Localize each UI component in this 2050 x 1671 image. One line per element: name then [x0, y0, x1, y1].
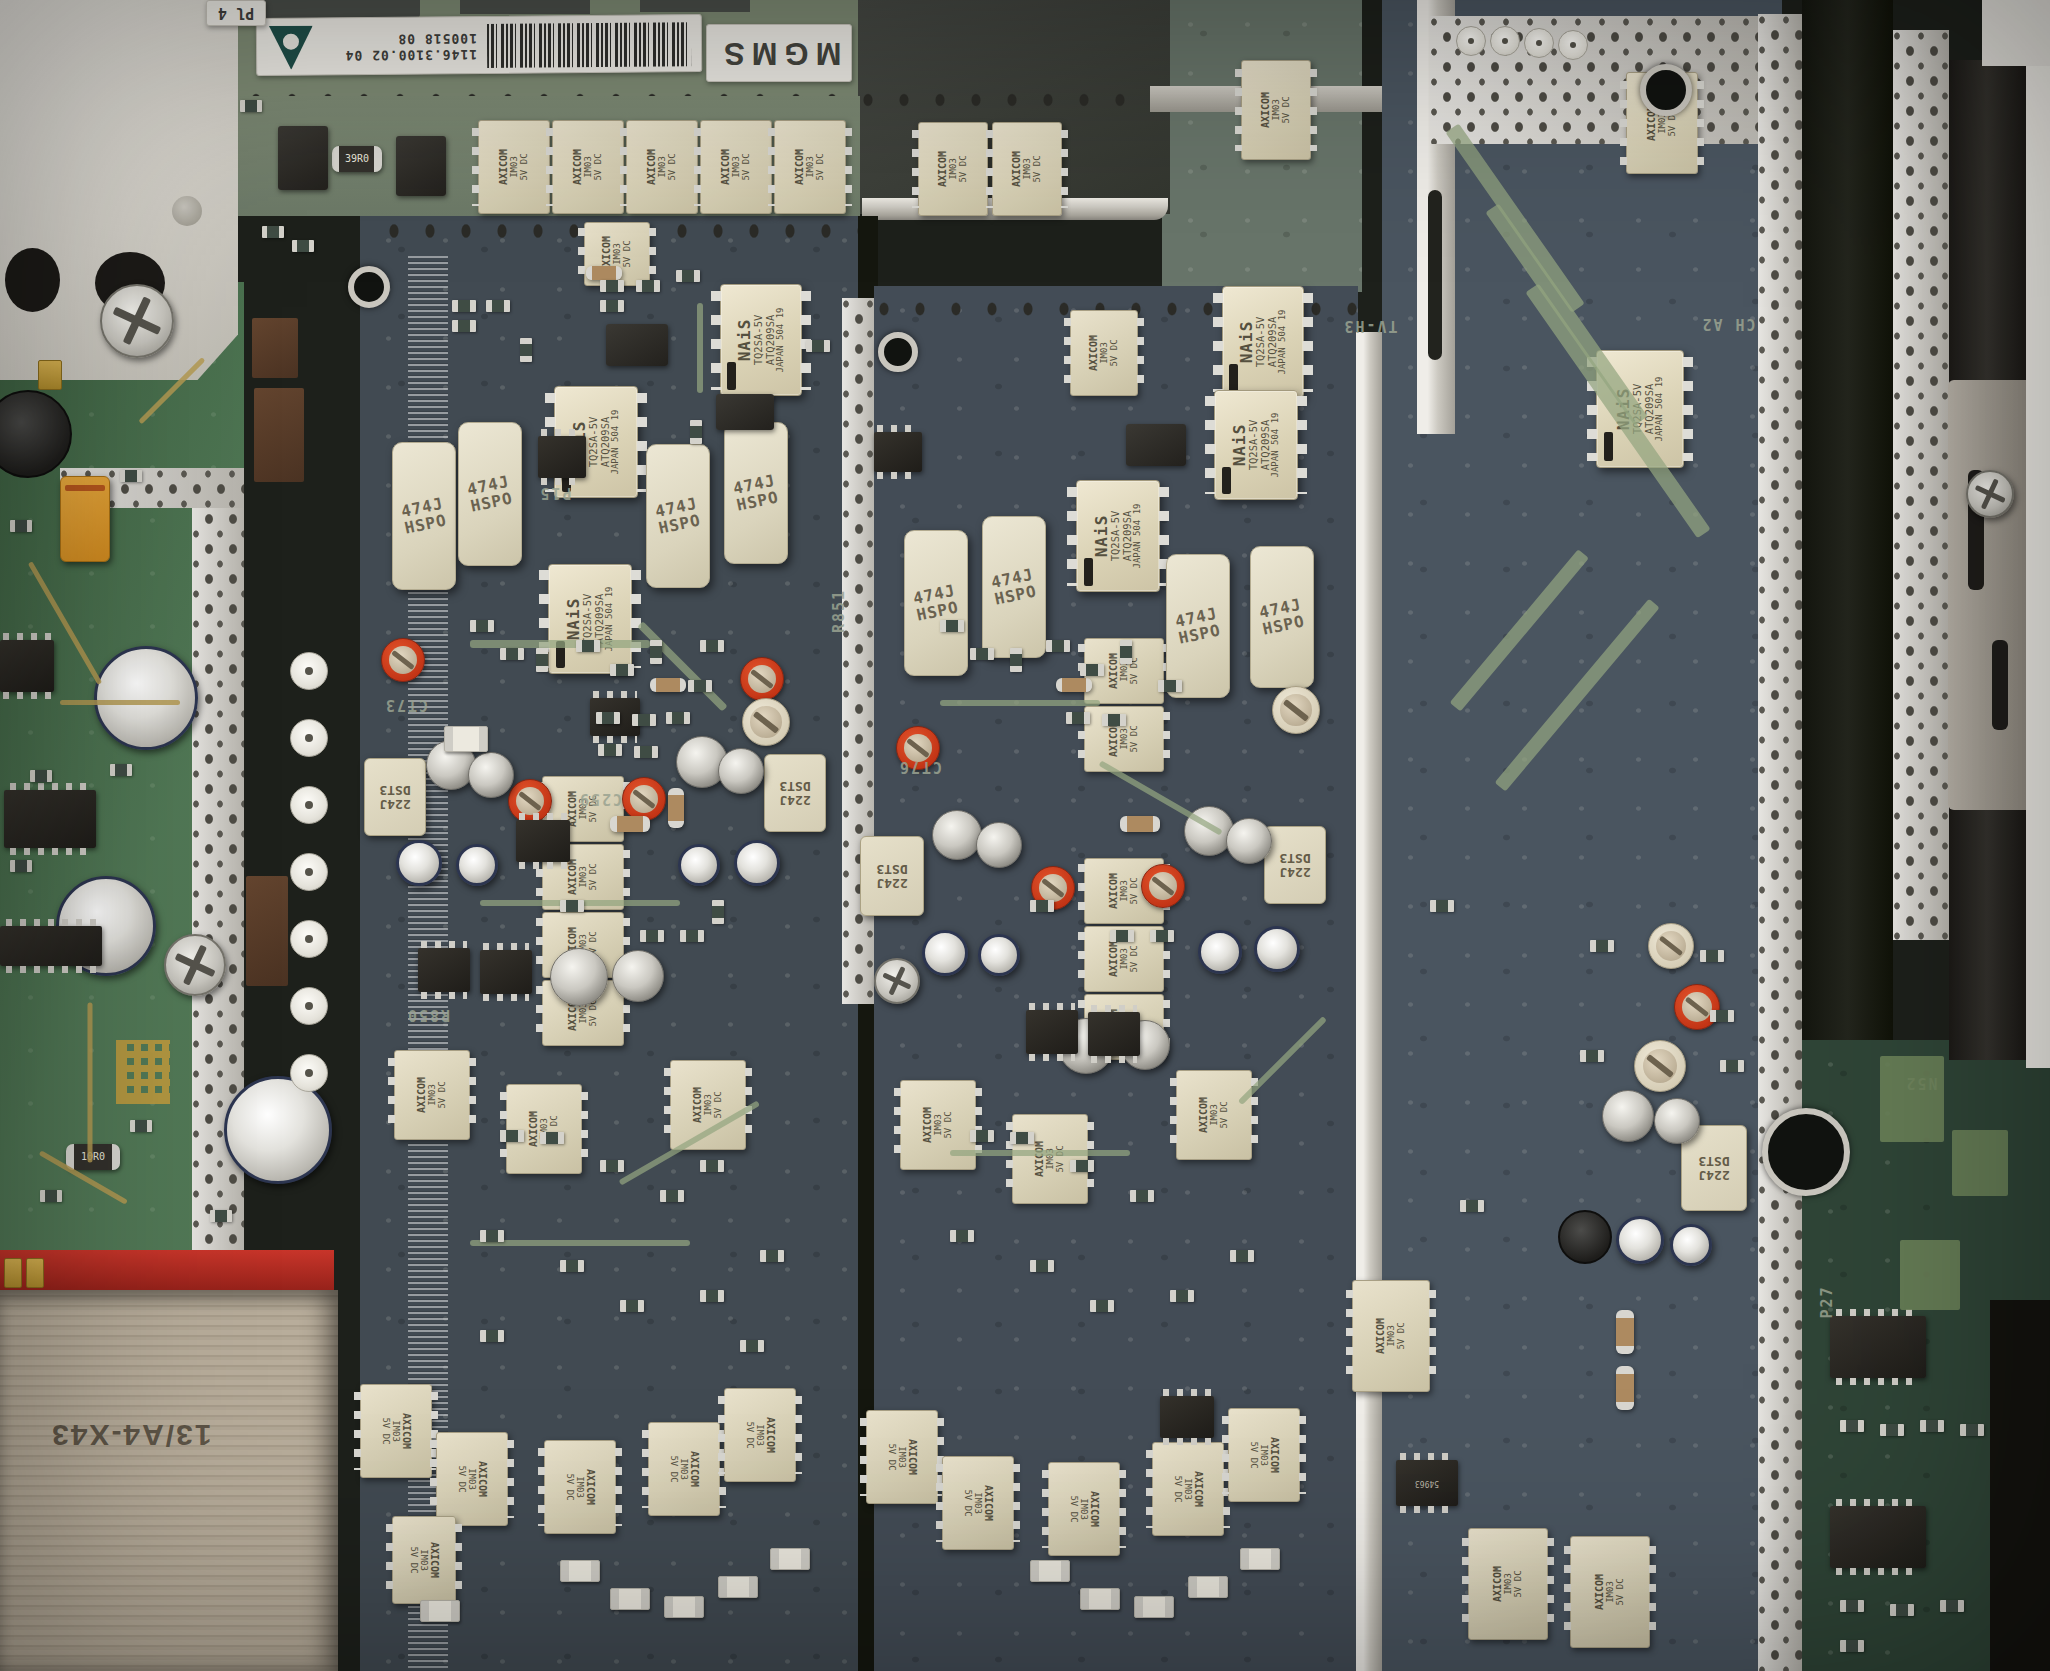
test-pad — [1490, 26, 1520, 56]
chip-component — [1840, 1420, 1864, 1432]
pcb-trace — [138, 357, 205, 424]
chip-component — [520, 338, 532, 362]
electrolytic-capacitor — [678, 844, 720, 886]
pcb-trace — [1450, 549, 1589, 711]
trimmer-dome-capacitor — [976, 822, 1022, 868]
chip-component — [760, 1250, 784, 1262]
chip-component — [120, 470, 142, 482]
chip-component — [600, 280, 624, 292]
components-layer: AXICOMIM035V DCAXICOMIM035V DCAXICOMIM03… — [0, 0, 2050, 1671]
chip-component — [500, 648, 524, 660]
chip-component — [1720, 1060, 1744, 1072]
chip-component — [1090, 1300, 1114, 1312]
smd-ic-soic8 — [1088, 1012, 1140, 1056]
chip-capacitor-white — [1240, 1548, 1280, 1570]
chip-component — [480, 1230, 504, 1242]
silkscreen-label: C259 — [560, 788, 640, 810]
relay-nais: NAiSTQ2SA-5VATQ209SAJAPAN 504 19 — [1214, 390, 1298, 500]
chip-component — [700, 640, 724, 652]
chip-component — [640, 930, 664, 942]
film-capacitor-224j: 224JDST3 — [764, 754, 826, 832]
chip-component — [690, 420, 702, 444]
chip-component — [10, 860, 32, 872]
relay-axicom: AXICOMIM035V DC — [626, 120, 698, 214]
electrolytic-capacitor — [224, 1076, 332, 1184]
film-capacitor-224j: 224JDST3 — [860, 836, 924, 916]
relay-axicom: AXICOMIM035V DC — [1468, 1528, 1548, 1640]
test-pad — [290, 1054, 328, 1092]
chip-component — [740, 1340, 764, 1352]
relay-axicom: AXICOMIM035V DC — [394, 1050, 470, 1140]
melf-resistor-tan — [1056, 678, 1092, 692]
trimmer-potentiometer-white — [1272, 686, 1320, 734]
chip-component — [610, 664, 634, 676]
silkscreen-label: R851 — [826, 566, 852, 656]
chip-component — [1110, 930, 1134, 942]
relay-axicom: AXICOMIM035V DC — [478, 120, 550, 214]
pcb-trace — [1485, 203, 1647, 425]
pcb-trace — [1445, 123, 1584, 312]
chip-component — [680, 930, 704, 942]
electrolytic-capacitor — [978, 934, 1020, 976]
trimmer-dome-capacitor — [1602, 1090, 1654, 1142]
smd-ic-soic8 — [516, 820, 570, 862]
film-capacitor-474j: 474JHSPO — [724, 422, 788, 564]
relay-axicom: AXICOMIM035V DC — [866, 1410, 938, 1504]
trimmer-dome-capacitor — [718, 748, 764, 794]
trimmer-dome-capacitor — [612, 950, 664, 1002]
relay-axicom: AXICOMIM035V DC — [942, 1456, 1014, 1550]
relay-mark — [1222, 467, 1231, 494]
smd-ic-soic14 — [0, 926, 102, 966]
chip-component — [30, 770, 52, 782]
pcb-trace — [470, 640, 650, 648]
relay-axicom: AXICOMIM035V DC — [1070, 310, 1138, 396]
chip-component — [480, 1330, 504, 1342]
trimmer-potentiometer-red — [381, 638, 425, 682]
chip-component — [292, 240, 314, 252]
film-capacitor-474j: 474JHSPO — [392, 442, 456, 590]
gold-contact — [38, 360, 62, 390]
relay-axicom: AXICOMIM035V DC — [670, 1060, 746, 1150]
chip-component — [596, 712, 620, 724]
electrolytic-capacitor — [1254, 926, 1300, 972]
trimmer-dome-capacitor — [1654, 1098, 1700, 1144]
chip-capacitor-white — [560, 1560, 600, 1582]
relay-mark — [1229, 364, 1238, 392]
chip-component — [1580, 1050, 1604, 1062]
melf-resistor-tan — [668, 788, 684, 828]
silkscreen-label: CT73 — [366, 694, 446, 716]
electrolytic-capacitor — [1198, 930, 1242, 974]
chip-component — [650, 640, 662, 664]
film-capacitor-474j: 474JHSPO — [1250, 546, 1314, 688]
pcb-trace — [950, 1150, 1130, 1156]
relay-axicom: AXICOMIM035V DC — [1352, 1280, 1430, 1392]
film-capacitor-474j: 474JHSPO — [904, 530, 968, 676]
relay-axicom: AXICOMIM035V DC — [544, 1440, 616, 1534]
chip-component — [666, 712, 690, 724]
film-capacitor-474j: 474JHSPO — [1166, 554, 1230, 698]
pcb-trace — [88, 1003, 93, 1163]
relay-axicom: AXICOMIM035V DC — [774, 120, 846, 214]
chip-component — [1700, 950, 1724, 962]
relay-axicom: AXICOMIM035V DC — [1012, 1114, 1088, 1204]
silkscreen-label: CH A2 — [1682, 312, 1774, 336]
silkscreen-label: TV-H3 — [1322, 314, 1418, 338]
chip-component — [1170, 1290, 1194, 1302]
chip-capacitor-white — [770, 1548, 810, 1570]
trimmer-potentiometer-white — [742, 698, 790, 746]
chip-component — [620, 1300, 644, 1312]
smd-ic-soic8 — [538, 436, 586, 478]
relay-axicom: AXICOMIM035V DC — [436, 1432, 508, 1526]
electrolytic-capacitor-dark — [0, 390, 72, 478]
relay-mark — [1084, 558, 1093, 586]
smd-ic-soic8 — [874, 432, 922, 472]
philips-screw — [1966, 470, 2014, 518]
chip-component — [1158, 680, 1182, 692]
pcb-photo: 1146.3100.02 04 100518 08 MGMS Pl 4 13/A… — [0, 0, 2050, 1671]
chip-component — [598, 744, 622, 756]
chip-component — [560, 1260, 584, 1272]
test-pad — [290, 652, 328, 690]
melf-resistor-tan — [610, 816, 650, 832]
dark-component-block — [716, 394, 774, 430]
chip-component — [1046, 640, 1070, 652]
chip-capacitor-white — [1188, 1576, 1228, 1598]
silkscreen-label: CT76 — [880, 756, 960, 778]
smd-ic-soic8 — [480, 950, 532, 994]
pcb-trace — [940, 700, 1100, 706]
chip-component — [110, 764, 132, 776]
solder-pad-green — [1880, 1056, 1944, 1142]
smd-ic-soic14 — [1830, 1316, 1926, 1378]
chip-component — [1010, 1132, 1034, 1144]
board-hole — [1762, 1108, 1850, 1196]
relay-nais: NAiSTQ2SA-5VATQ209SAJAPAN 504 19 — [1076, 480, 1160, 592]
test-pad — [290, 853, 328, 891]
tantalum-capacitor — [60, 476, 110, 562]
film-capacitor-224j: 224JDST3 — [364, 758, 426, 836]
chip-component — [1840, 1640, 1864, 1652]
melf-resistor-tan — [1616, 1310, 1634, 1354]
trimmer-dome-capacitor — [468, 752, 514, 798]
chip-component — [700, 1160, 724, 1172]
chip-component — [632, 714, 656, 726]
chip-capacitor-white — [1030, 1560, 1070, 1582]
electrolytic-capacitor — [734, 840, 780, 886]
brown-block — [246, 876, 288, 986]
chip-component — [470, 620, 494, 632]
relay-axicom: AXICOMIM035V DC — [1152, 1442, 1224, 1536]
chip-component — [1150, 930, 1174, 942]
relay-axicom: AXICOMIM035V DC — [918, 122, 988, 216]
chip-capacitor-white — [664, 1596, 704, 1618]
chip-component — [130, 1120, 152, 1132]
electrolytic-capacitor — [1670, 1224, 1712, 1266]
chip-component — [452, 320, 476, 332]
brown-block — [252, 318, 298, 378]
trimmer-potentiometer-red — [1141, 864, 1185, 908]
dark-component-block — [396, 136, 446, 196]
chip-capacitor-white — [444, 726, 488, 752]
trimmer-potentiometer-white — [1648, 923, 1694, 969]
chip-component — [540, 1132, 564, 1144]
chip-component — [560, 900, 584, 912]
chip-component — [600, 300, 624, 312]
relay-mark — [1604, 432, 1613, 461]
chip-component — [1890, 1604, 1914, 1616]
relay-axicom: AXICOMIM035V DC — [1048, 1462, 1120, 1556]
chip-component — [1710, 1010, 1734, 1022]
relay-axicom: AXICOMIM035V DC — [700, 120, 772, 214]
relay-mark — [727, 362, 736, 390]
chip-component — [210, 1210, 232, 1222]
chip-component — [970, 648, 994, 660]
chip-component — [1070, 1160, 1094, 1172]
smd-ic-soic8: 54963 — [1396, 1460, 1458, 1506]
chip-component — [1960, 1424, 1984, 1436]
solder-pad-green — [1900, 1240, 1960, 1310]
silkscreen-label: R850 — [386, 1004, 470, 1026]
melf-resistor: 10R0 — [66, 1144, 120, 1170]
chip-component — [676, 270, 700, 282]
smd-ic-soic14 — [1830, 1506, 1926, 1568]
chip-component — [600, 1160, 624, 1172]
chip-component — [1840, 1600, 1864, 1612]
melf-resistor-tan — [650, 678, 686, 692]
melf-resistor: 39R0 — [332, 146, 382, 172]
smd-ic-soic8 — [0, 640, 54, 692]
brown-block — [254, 388, 304, 482]
datamatrix-mark — [116, 1040, 170, 1104]
relay-axicom: AXICOMIM035V DC — [992, 122, 1062, 216]
chip-component — [1590, 940, 1614, 952]
relay-axicom: AXICOMIM035V DC — [1241, 60, 1311, 160]
chip-component — [1130, 1190, 1154, 1202]
chip-capacitor-white — [610, 1588, 650, 1610]
relay-axicom: AXICOMIM035V DC — [392, 1516, 456, 1604]
silkscreen-label: P27 — [1814, 1262, 1840, 1342]
relay-axicom: AXICOMIM035V DC — [724, 1388, 796, 1482]
relay-axicom: AXICOMIM035V DC — [552, 120, 624, 214]
melf-resistor-tan — [586, 266, 622, 280]
film-capacitor-474j: 474JHSPO — [982, 516, 1046, 658]
electrolytic-capacitor — [922, 930, 968, 976]
board-hole — [348, 266, 390, 308]
gold-contact — [4, 1258, 22, 1288]
trimmer-potentiometer-white — [1634, 1040, 1686, 1092]
chip-component — [1920, 1420, 1944, 1432]
chip-component — [1120, 640, 1132, 664]
chip-component — [1030, 1260, 1054, 1272]
relay-axicom: AXICOMIM035V DC — [1570, 1536, 1650, 1648]
chip-component — [634, 746, 658, 758]
chip-component — [950, 1230, 974, 1242]
trimmer-dome-capacitor — [1226, 818, 1272, 864]
chip-component — [700, 1290, 724, 1302]
electrolytic-capacitor-dark — [1558, 1210, 1612, 1264]
electrolytic-capacitor — [1616, 1216, 1664, 1264]
relay-axicom: AXICOMIM035V DC — [1176, 1070, 1252, 1160]
film-capacitor-474j: 474JHSPO — [646, 444, 710, 588]
test-pad — [290, 987, 328, 1025]
chip-capacitor-white — [1080, 1588, 1120, 1610]
test-pad — [1558, 30, 1588, 60]
chip-capacitor-white — [1134, 1596, 1174, 1618]
electrolytic-capacitor — [94, 646, 198, 750]
board-hole — [1640, 64, 1692, 116]
solder-pad-green — [1952, 1130, 2008, 1196]
chip-component — [688, 680, 712, 692]
film-capacitor-474j: 474JHSPO — [458, 422, 522, 566]
philips-screw — [100, 284, 174, 358]
test-pad — [1456, 26, 1486, 56]
trimmer-dome-capacitor — [550, 948, 608, 1006]
chip-component — [10, 520, 32, 532]
relay-axicom: AXICOMIM035V DC — [900, 1080, 976, 1170]
chip-component — [636, 280, 660, 292]
philips-screw — [164, 934, 226, 996]
chip-component — [1940, 1600, 1964, 1612]
chip-component — [500, 1130, 524, 1142]
chip-component — [1080, 664, 1104, 676]
electrolytic-capacitor — [396, 840, 442, 886]
test-pad — [1524, 28, 1554, 58]
relay-nais: NAiSTQ2SA-5VATQ209SAJAPAN 504 19 — [1222, 286, 1304, 398]
smd-ic-soic8 — [418, 948, 470, 992]
dark-component-block — [1126, 424, 1186, 466]
chip-component — [452, 300, 476, 312]
relay-nais: NAiSTQ2SA-5VATQ209SAJAPAN 504 19 — [720, 284, 802, 396]
chip-capacitor-white — [718, 1576, 758, 1598]
pcb-trace — [1238, 1016, 1327, 1105]
trimmer-potentiometer-red — [740, 657, 784, 701]
chip-component — [1230, 1250, 1254, 1262]
trimmer-dome-capacitor — [932, 810, 982, 860]
relay-axicom: AXICOMIM035V DC — [1228, 1408, 1300, 1502]
test-pad — [290, 719, 328, 757]
chip-component — [536, 648, 548, 672]
film-capacitor-224j: 224JDST3 — [1264, 826, 1326, 904]
chip-component — [1880, 1424, 1904, 1436]
chip-component — [1066, 712, 1090, 724]
chip-component — [1460, 1200, 1484, 1212]
pcb-trace — [697, 303, 703, 393]
chip-component — [240, 100, 262, 112]
board-hole — [878, 332, 918, 372]
test-pad — [290, 786, 328, 824]
chip-component — [712, 900, 724, 924]
relay-axicom: AXICOMIM035V DC — [360, 1384, 432, 1478]
chip-component — [970, 1130, 994, 1142]
smd-ic-soic8 — [1160, 1396, 1214, 1438]
pcb-trace — [637, 621, 728, 712]
chip-component — [1030, 900, 1054, 912]
relay-axicom: AXICOMIM035V DC — [648, 1422, 720, 1516]
dark-component-block — [606, 324, 668, 366]
relay-nais: NAiSTQ2SA-5VATQ209SAJAPAN 504 19 — [548, 564, 632, 674]
dark-component-block — [278, 126, 328, 190]
electrolytic-capacitor — [456, 844, 498, 886]
chip-component — [1102, 714, 1126, 726]
chip-component — [806, 340, 830, 352]
philips-screw — [874, 958, 920, 1004]
relay-axicom: AXICOMIM035V DC — [506, 1084, 582, 1174]
test-pad — [290, 920, 328, 958]
chip-component — [486, 300, 510, 312]
gold-contact — [26, 1258, 44, 1288]
melf-resistor-tan — [1616, 1366, 1634, 1410]
chip-component — [40, 1190, 62, 1202]
trimmer-potentiometer-red — [1674, 984, 1720, 1030]
pcb-trace — [60, 700, 180, 705]
chip-component — [660, 1190, 684, 1202]
chip-component — [1430, 900, 1454, 912]
silkscreen-label: P15 — [520, 482, 590, 504]
smd-ic-soic14 — [4, 790, 96, 848]
chip-capacitor-white — [420, 1600, 460, 1622]
smd-ic-soic8 — [1026, 1010, 1078, 1054]
chip-component — [262, 226, 284, 238]
melf-resistor-tan — [1120, 816, 1160, 832]
chip-component — [940, 620, 964, 632]
chip-component — [576, 640, 600, 652]
chip-component — [1010, 648, 1022, 672]
